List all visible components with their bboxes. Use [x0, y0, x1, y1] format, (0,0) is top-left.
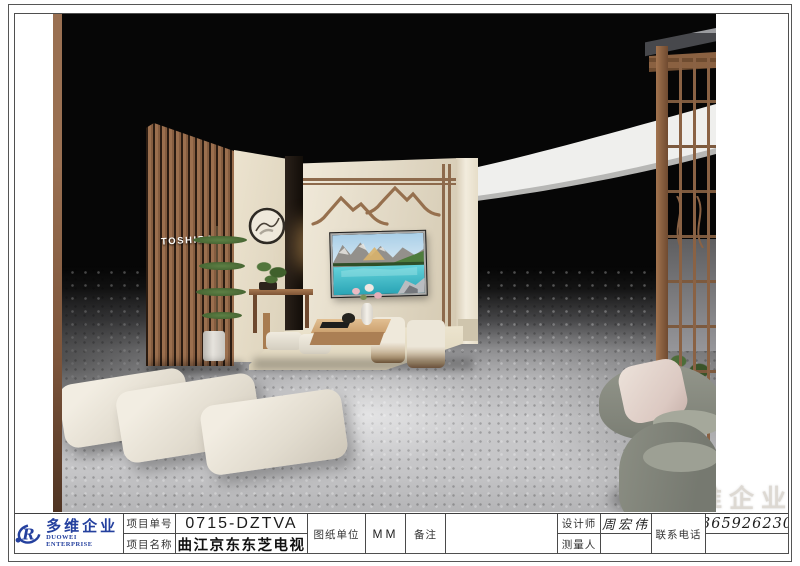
booth-render-image: TOSHIBA	[53, 14, 716, 512]
flower-bouquet	[345, 280, 389, 308]
booth-corner-pillar	[456, 158, 478, 344]
lattice-wave-decor	[669, 196, 716, 248]
company-logo: 多维企业 DUOWEI ENTERPRISE	[15, 514, 124, 554]
drawing-frame: TOSHIBA	[14, 13, 789, 554]
armchair-front-seat	[643, 442, 716, 472]
title-block: 多维企业 DUOWEI ENTERPRISE 项目单号 0715-DZTVA 项…	[15, 513, 788, 554]
plant-leaf-layer	[193, 236, 247, 244]
phone-label: 联系电话	[652, 514, 706, 554]
remark-value	[446, 514, 558, 554]
low-chair-seat	[266, 332, 302, 350]
phone-value: 13659262305	[706, 514, 788, 534]
phone-empty-cell	[706, 534, 788, 554]
project-name-label: 项目名称	[124, 534, 176, 554]
tall-plant-pot	[203, 331, 225, 361]
surveyor-value	[601, 534, 652, 554]
beige-wall-panel	[234, 150, 285, 362]
designer-label: 设计师	[558, 514, 601, 534]
designer-value: 周宏伟	[601, 514, 652, 534]
mountain-shaped-trim	[311, 184, 441, 229]
project-no-label: 项目单号	[124, 514, 176, 534]
presentation-sheet: TOSHIBA	[0, 0, 800, 566]
wall-trim-vertical-2	[448, 164, 451, 336]
wall-trim-vertical	[442, 164, 445, 336]
drawing-unit-label: 图纸单位	[308, 514, 366, 554]
wall-floor-shadow	[253, 358, 473, 370]
plant-leaf-layer-3	[196, 288, 246, 296]
console-table	[249, 289, 313, 295]
bonsai-tree	[252, 257, 292, 285]
teapot	[342, 313, 355, 323]
surveyor-label: 测量人	[558, 534, 601, 554]
company-name-en: DUOWEI ENTERPRISE	[46, 535, 123, 549]
company-logo-icon	[15, 521, 42, 547]
project-no-value: 0715-DZTVA	[176, 514, 308, 534]
project-name-value: 曲江京东东芝电视	[176, 534, 308, 554]
drawing-unit-value: MM	[366, 514, 406, 554]
company-name-zh: 多维企业	[46, 519, 123, 535]
tea-table-front	[310, 332, 385, 345]
plant-leaf-layer-2	[199, 262, 245, 270]
round-wall-art	[248, 207, 286, 245]
wall-trim-horizontal	[303, 178, 478, 181]
console-table-leg-2	[305, 295, 309, 328]
foreground-wood-pillar	[53, 14, 62, 512]
plant-leaf-layer-4	[202, 312, 242, 319]
remark-label: 备注	[406, 514, 446, 554]
console-table-leg	[253, 295, 257, 333]
